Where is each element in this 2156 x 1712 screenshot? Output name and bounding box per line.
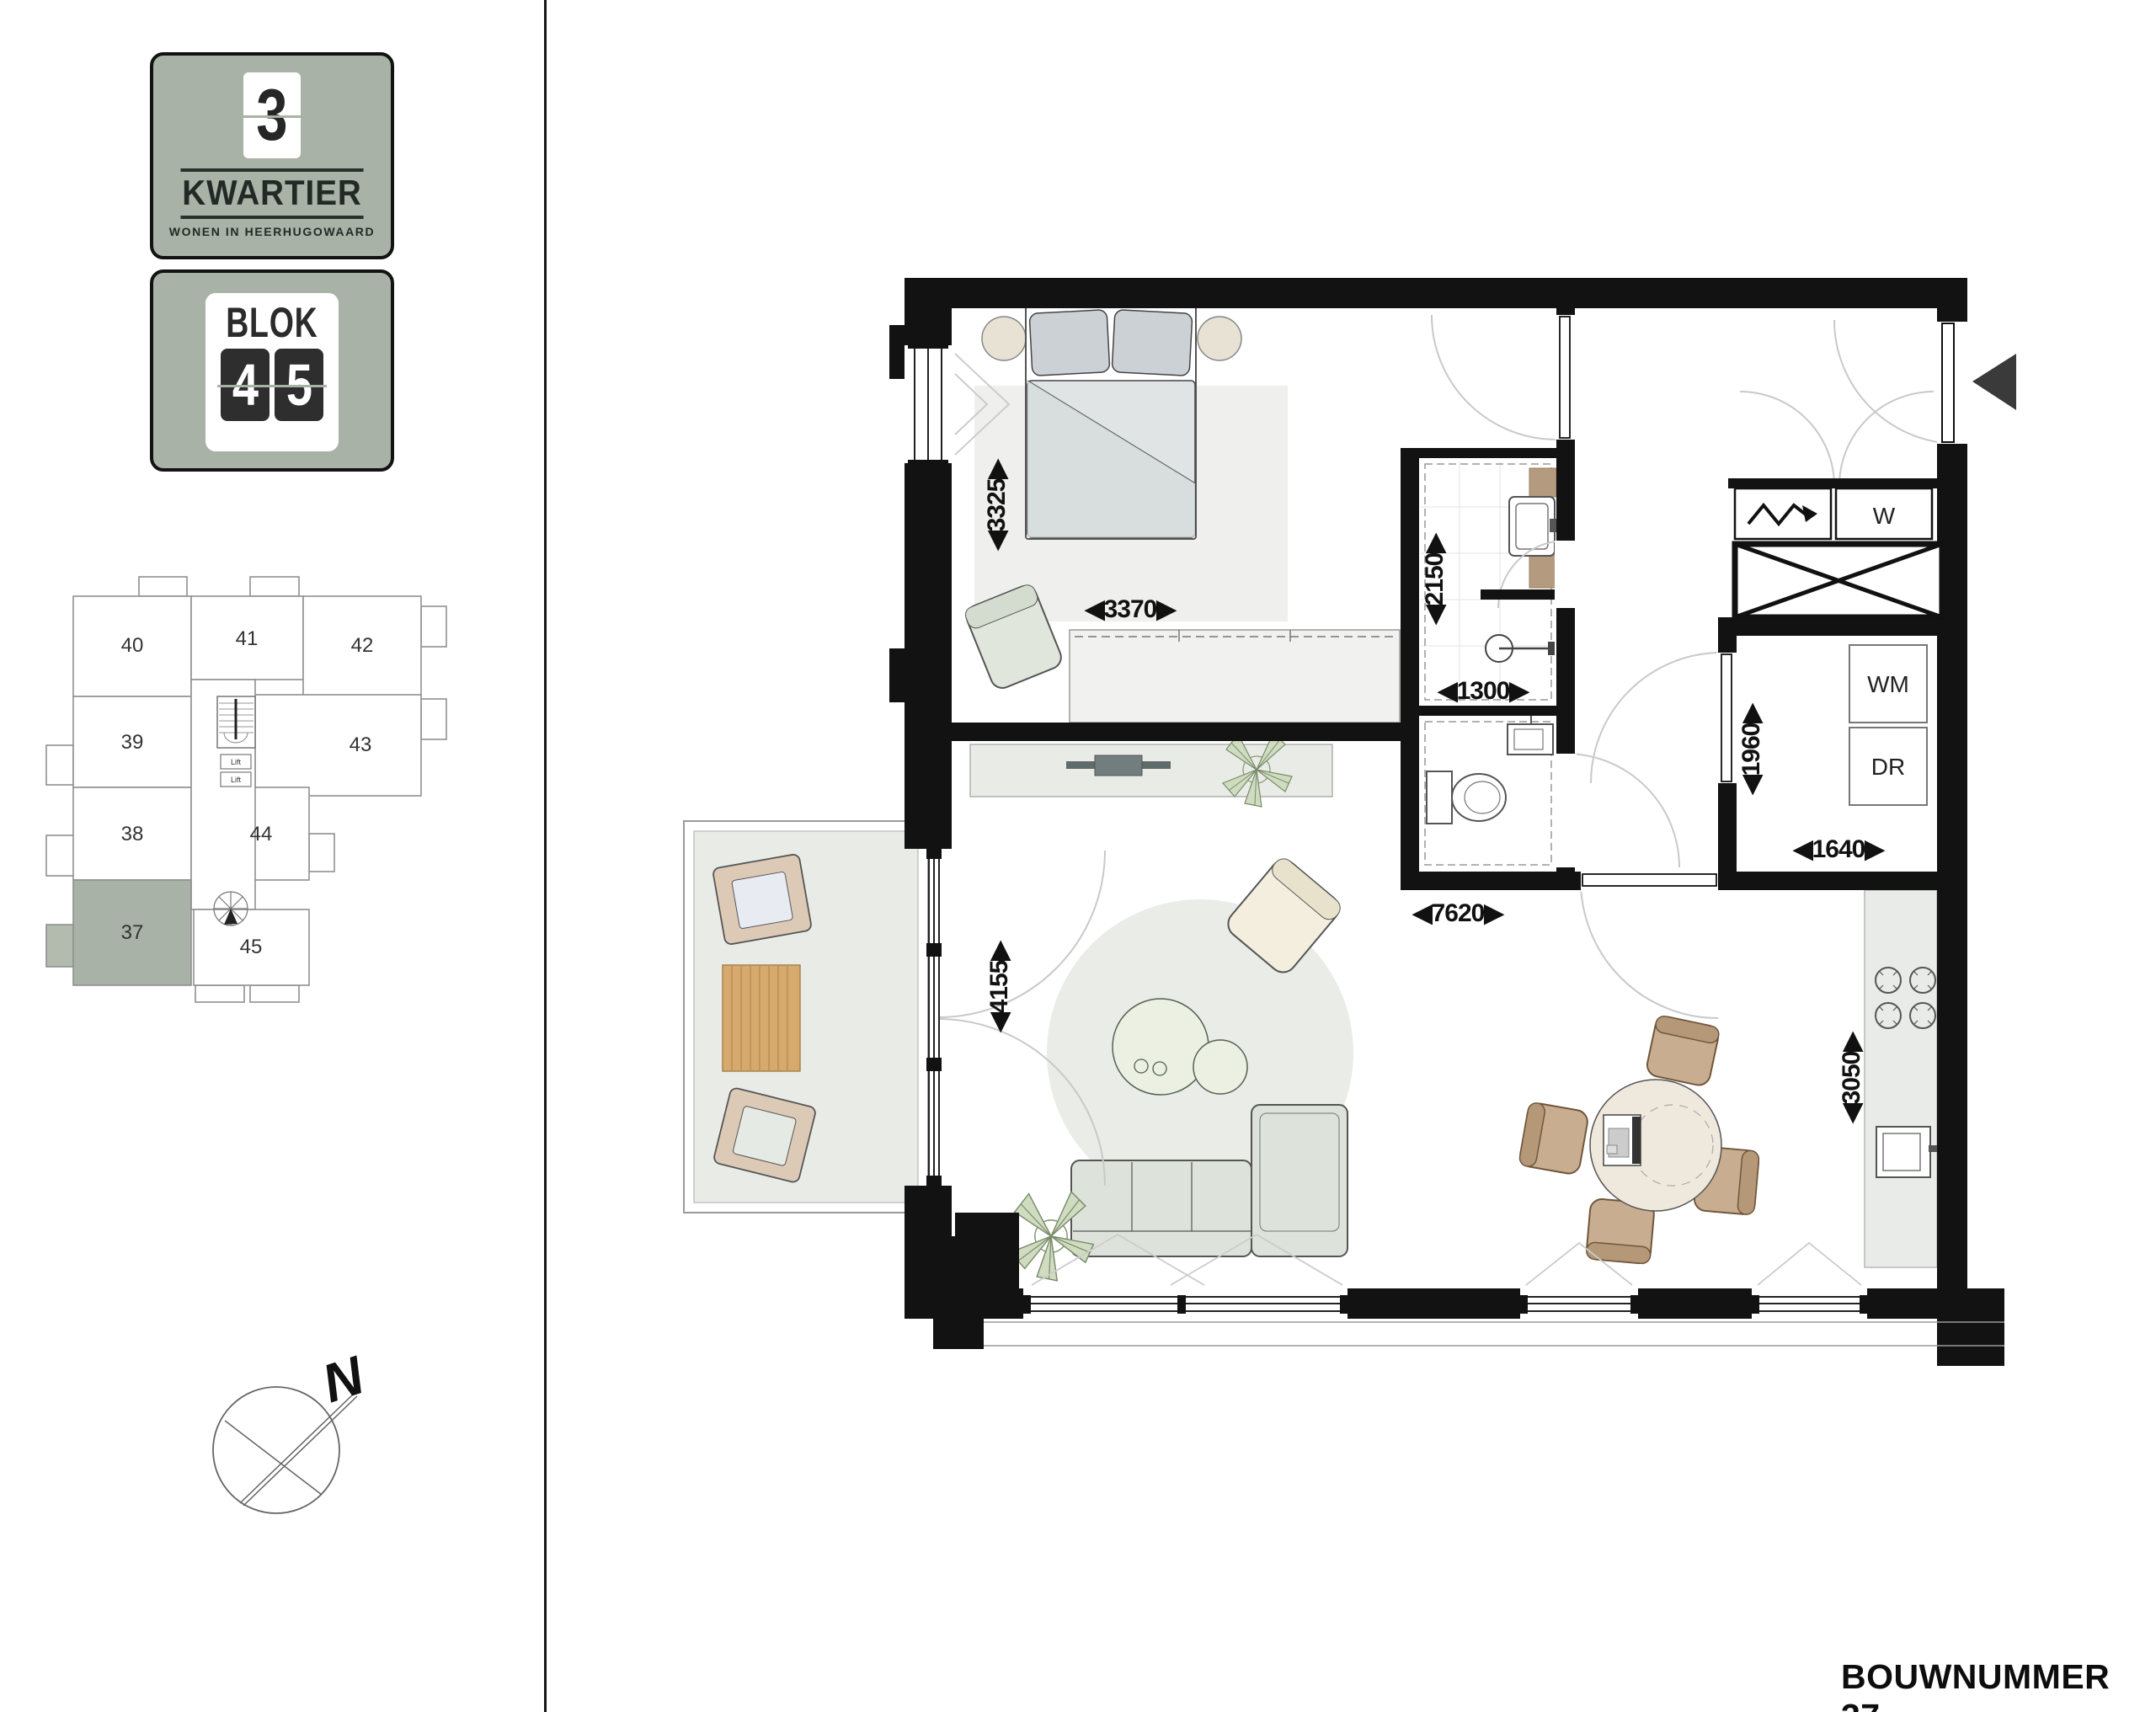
meter-cupboard: W (1735, 488, 1942, 617)
sideboard (970, 733, 1332, 807)
site-overview-plan: Lift Lift 40 41 42 39 43 38 44 37 45 (25, 564, 505, 1137)
pillow (1112, 310, 1193, 376)
storage-door-leaf (1721, 654, 1732, 781)
storage-room: WM DR (1849, 645, 1927, 805)
block-label: BLOK (226, 293, 318, 344)
wc-door-arc (1566, 754, 1679, 867)
block-digit-5: 5 (275, 349, 323, 421)
unit-37-balcony (46, 925, 76, 967)
nightstand (982, 317, 1026, 360)
bathroom-wall (1401, 448, 1575, 458)
bedroom-door-leaf (1560, 317, 1570, 438)
unit-number-45: 45 (240, 936, 263, 958)
corner-pillar (955, 1213, 1019, 1288)
bathroom-wc-wall (1401, 706, 1575, 716)
lift-label: Lift (231, 758, 242, 766)
meter-cupboard-door-arc (1740, 392, 1834, 486)
exterior-wall-right (1937, 308, 1967, 322)
entrance-door-leaf (1942, 323, 1954, 442)
wall-pilaster (889, 325, 905, 379)
dim-living-depth: ◀4155▶ (985, 940, 1013, 1034)
exterior-wall-top (905, 278, 1967, 308)
bedroom-door-arc (1432, 315, 1556, 440)
unit-43-outline (255, 695, 421, 796)
nightstand (1198, 317, 1241, 360)
wc-door-opening (1555, 754, 1577, 867)
spiral-stair (214, 892, 248, 925)
kitchen (1865, 890, 1939, 1267)
living-door-leaf (1582, 874, 1716, 886)
balcony-outline (421, 699, 446, 739)
balcony-wall-block (905, 1186, 952, 1236)
balcony-outline (195, 985, 244, 1002)
washbasin (1509, 497, 1556, 556)
exterior-wall-left (905, 463, 952, 800)
balcony-outline (46, 745, 73, 785)
kitchen-sink (1876, 1127, 1939, 1177)
chaise (1251, 1105, 1347, 1256)
dim-kitchen-length: ◀3050▶ (1838, 1031, 1865, 1125)
window-unit (1752, 1243, 1867, 1319)
side-table (1193, 1040, 1247, 1094)
section-divider-line (544, 0, 547, 1712)
balcony-glass-wall (926, 849, 942, 1186)
unit-number-38: 38 (121, 823, 144, 845)
exterior-corner (1937, 1288, 2004, 1366)
corner-pillar (933, 1288, 984, 1349)
dim-bathroom-depth: ◀2150▶ (1421, 532, 1449, 627)
wardrobe (1070, 630, 1400, 723)
project-name: KWARTIER (180, 168, 363, 219)
dining-chair (1645, 1015, 1720, 1087)
dining-area (1518, 1015, 1759, 1264)
hall-wall (1718, 872, 1937, 890)
unit-number-37: 37 (121, 921, 144, 944)
project-number: 3 (256, 72, 287, 158)
block-number: 4 5 (205, 349, 339, 421)
double-bed (1026, 307, 1196, 539)
shower-partition (1481, 589, 1556, 600)
toilet (1427, 771, 1506, 824)
dim-bedroom-depth: ◀3325▶ (983, 458, 1011, 552)
project-number-flipcard: 3 (243, 72, 301, 158)
north-label: N (315, 1344, 372, 1414)
pillow (1029, 310, 1110, 376)
unit-number-41: 41 (236, 627, 259, 650)
floor-plan: W WM DR ◀3325▶ ◀3370▶ ◀2150▶ ◀1300▶ ◀196… (547, 236, 2156, 1465)
coffee-table (1113, 999, 1209, 1095)
washing-machine-label: WM (1867, 671, 1909, 697)
exterior-wall-bottom (1867, 1288, 1937, 1319)
balcony-outline (139, 577, 187, 596)
exterior-wall-bottom (1347, 1288, 1520, 1319)
block-badge: BLOK 4 5 (150, 269, 394, 472)
project-tagline: WONEN IN HEERHUGOWAARD (153, 225, 391, 238)
unit-number-44: 44 (250, 823, 273, 845)
meter-cupboard-door-arc (1839, 392, 1934, 486)
block-panel: BLOK 4 5 (205, 293, 339, 451)
deck-mat (723, 965, 800, 1071)
dim-storage-depth: ◀1960▶ (1737, 702, 1765, 797)
balcony-outline (250, 577, 299, 596)
bedroom-wall (952, 723, 1401, 741)
cupboard-front (1728, 478, 1942, 488)
vanity-counter (1529, 554, 1556, 588)
laptop (1604, 1115, 1641, 1165)
dining-chair (1518, 1101, 1589, 1175)
vanity-counter (1529, 468, 1556, 497)
toilet-room (1425, 716, 1553, 865)
dim-living-width: ◀7620▶ (1412, 899, 1506, 927)
exterior-wall-bottom (1638, 1288, 1752, 1319)
balcony-wall-block (905, 800, 952, 849)
dim-bathroom-width: ◀1300▶ (1437, 677, 1531, 705)
bathroom-door-opening (1555, 541, 1577, 608)
balcony-outline (309, 834, 334, 872)
lift-label: Lift (231, 776, 242, 784)
page: 3 KWARTIER WONEN IN HEERHUGOWAARD BLOK 4… (0, 0, 2156, 1712)
balcony-outline (250, 985, 299, 1002)
dim-storage-width: ◀1640▶ (1792, 835, 1886, 863)
shower-head (1486, 635, 1555, 662)
project-logo-badge: 3 KWARTIER WONEN IN HEERHUGOWAARD (150, 52, 394, 259)
dryer-label: DR (1871, 754, 1905, 780)
wall-pilaster (889, 648, 905, 702)
unit-number-40: 40 (121, 634, 144, 657)
bouwnummer-label: BOUWNUMMER 37 (1841, 1657, 2156, 1712)
water-meter-label: W (1873, 503, 1896, 529)
north-compass: N (194, 1309, 463, 1579)
unit-number-42: 42 (351, 634, 374, 657)
balcony-outline (46, 835, 76, 876)
unit-number-39: 39 (121, 731, 144, 754)
living-door-arc (1581, 881, 1718, 1018)
lounge-chair (712, 854, 812, 946)
bedroom (963, 307, 1400, 723)
entrance-marker-triangle (1972, 354, 2016, 410)
balcony-outline (421, 606, 446, 647)
unit-number-43: 43 (350, 733, 372, 756)
block-digit-4: 4 (221, 349, 269, 421)
dim-bedroom-width: ◀3370▶ (1084, 595, 1178, 623)
exterior-wall-left (905, 308, 952, 345)
living-room (1011, 855, 1353, 1281)
core-stairs (217, 696, 255, 748)
interior-wall (1401, 448, 1419, 890)
shaft (1735, 544, 1942, 617)
kitchen-counter (1865, 890, 1937, 1267)
hall-wall (1401, 872, 1581, 890)
